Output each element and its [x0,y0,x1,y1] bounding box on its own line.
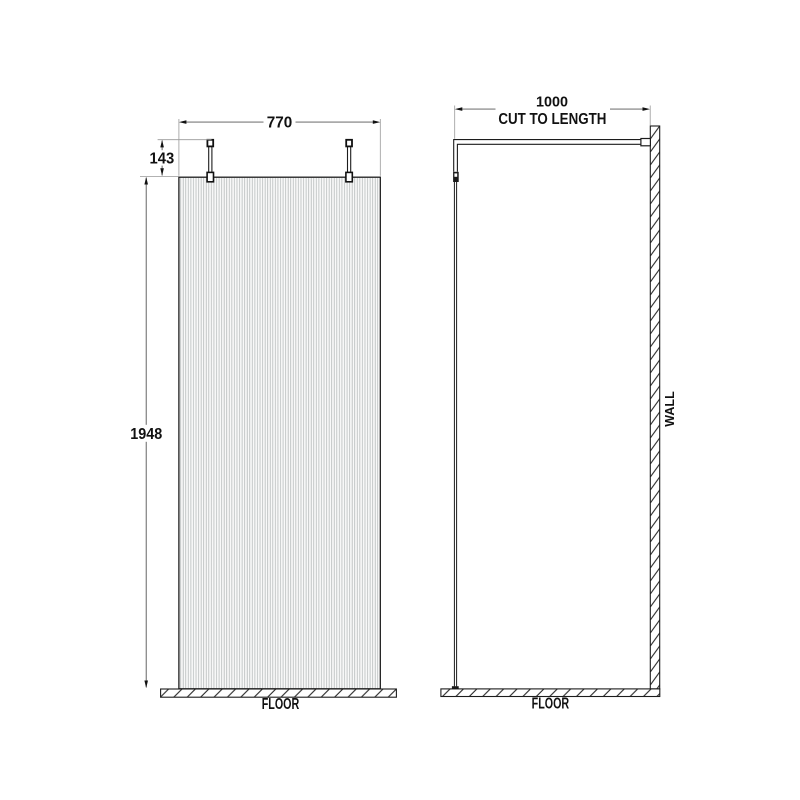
svg-text:1000: 1000 [536,94,568,111]
svg-text:FLOOR: FLOOR [262,696,300,713]
svg-text:1948: 1948 [130,426,162,443]
svg-text:FLOOR: FLOOR [532,695,570,712]
svg-text:CUT TO LENGTH: CUT TO LENGTH [498,111,606,128]
svg-text:WALL: WALL [663,391,677,427]
svg-text:143: 143 [150,151,175,168]
svg-text:770: 770 [267,115,293,132]
